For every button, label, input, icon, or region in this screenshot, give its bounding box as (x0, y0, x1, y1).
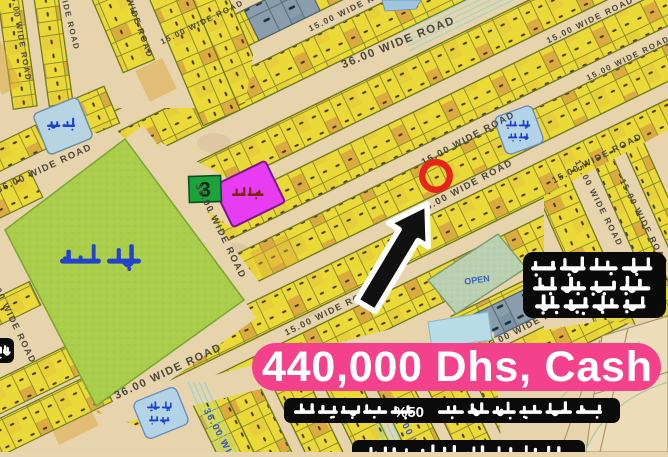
svg-text:440,000 Dhs, Cash: 440,000 Dhs, Cash (262, 343, 652, 391)
svg-text:%50: %50 (394, 404, 424, 421)
